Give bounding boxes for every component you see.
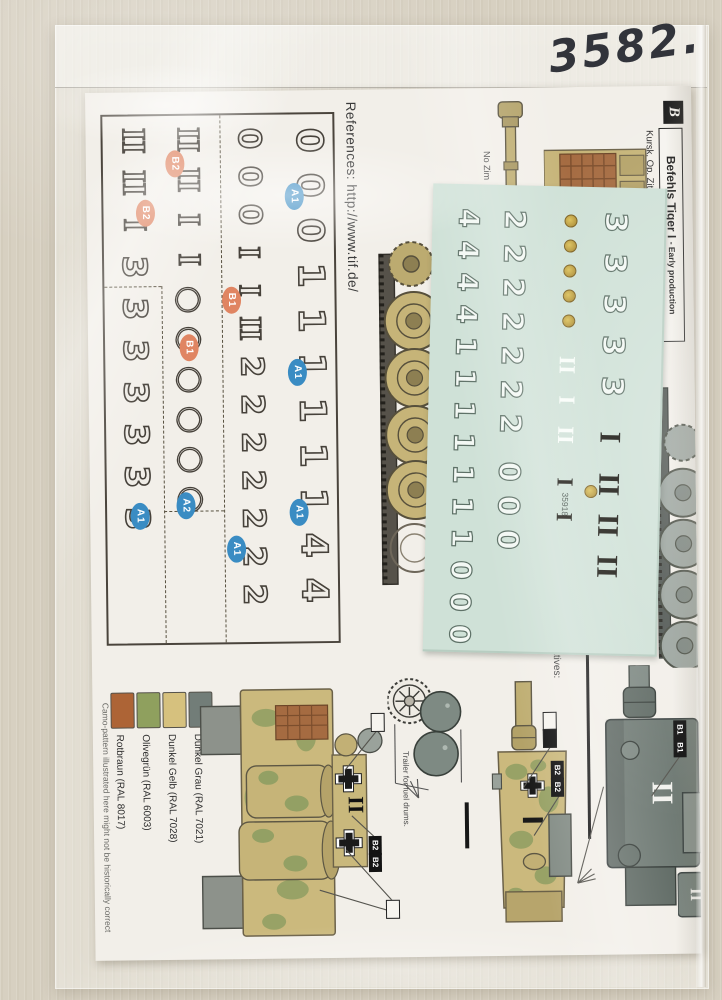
marker-box-B1: B1 bbox=[673, 720, 686, 739]
svg-text:II: II bbox=[344, 796, 369, 813]
guide-glyph: 0 bbox=[233, 166, 264, 188]
decal-glyph: I bbox=[594, 431, 624, 443]
paint-label: Olivegrün (RAL 6003) bbox=[140, 734, 154, 949]
decal-glyph: 0 bbox=[493, 495, 522, 516]
paint-label: Dunkel Gelb (RAL 7028) bbox=[166, 734, 180, 949]
decal-glyph: 3 bbox=[597, 294, 627, 316]
position-label-A1: A1 bbox=[289, 499, 308, 526]
decal-glyph: 2 bbox=[497, 345, 526, 366]
decal-column: 2222222000 bbox=[487, 205, 535, 555]
decal-glyph: 2 bbox=[497, 311, 526, 332]
callout-box bbox=[543, 729, 557, 748]
decal-glyph: 1 bbox=[447, 528, 475, 548]
decal-glyph: 1 bbox=[449, 464, 477, 484]
guide-glyph: II bbox=[172, 127, 204, 152]
decal-column: 33333IIIIIII bbox=[586, 207, 634, 582]
position-label-A1: A1 bbox=[227, 536, 246, 563]
decal-glyph: 2 bbox=[498, 277, 527, 298]
guide-glyph: 0 bbox=[292, 218, 328, 244]
guide-glyph: ○ bbox=[174, 286, 206, 314]
decal-glyph: 4 bbox=[454, 240, 482, 260]
guide-glyph: 3 bbox=[117, 255, 150, 278]
guide-glyph: 0 bbox=[234, 204, 265, 226]
decal-glyph: II bbox=[592, 513, 623, 537]
guide-glyph: 4 bbox=[296, 577, 332, 603]
position-label-B2: B2 bbox=[136, 200, 155, 227]
guide-glyph: II bbox=[235, 316, 266, 341]
guide-glyph: 1 bbox=[293, 308, 329, 334]
guide-glyph: I bbox=[173, 213, 205, 226]
decal-glyph: I bbox=[553, 477, 576, 486]
decal-glyph: 1 bbox=[451, 336, 479, 356]
decal-glyph: II bbox=[593, 472, 624, 496]
guide-glyph: 2 bbox=[237, 470, 268, 492]
position-label-A1: A1 bbox=[285, 183, 304, 210]
decal-glyph: 4 bbox=[452, 304, 480, 324]
paint-swatch bbox=[136, 692, 160, 728]
decal-glyph: I bbox=[552, 512, 575, 521]
marker-box-B2: B2 bbox=[369, 853, 382, 872]
decal-emblem bbox=[564, 214, 577, 227]
guide-glyph: 1 bbox=[294, 442, 330, 468]
decal-column: IIIIIII bbox=[544, 214, 591, 529]
decal-glyph: 2 bbox=[500, 209, 529, 230]
guide-glyph: ○ bbox=[175, 366, 207, 394]
decal-glyph: I bbox=[555, 395, 578, 404]
decal-glyph: 1 bbox=[450, 400, 478, 420]
guide-glyph: II bbox=[116, 128, 149, 154]
decal-glyph: 2 bbox=[495, 413, 524, 434]
guide-glyph: I bbox=[234, 246, 265, 258]
decal-emblem bbox=[563, 264, 576, 277]
guide-glyph: 1 bbox=[294, 398, 330, 424]
decal-glyph: 3 bbox=[596, 335, 626, 357]
position-label-A1: A1 bbox=[288, 359, 307, 386]
camo-disclaimer-note: Camo-pattern illustrated here might not … bbox=[100, 703, 113, 953]
guide-glyph: 3 bbox=[118, 297, 151, 320]
guide-glyph: I bbox=[174, 253, 206, 266]
tank-rear-view-illustration: II bbox=[195, 676, 418, 949]
decal-glyph: II bbox=[554, 426, 577, 444]
position-label-B1: B1 bbox=[222, 287, 241, 314]
waterslide-decal-sheet: 35918 444411111110002222222000IIIIIII333… bbox=[423, 183, 668, 656]
guide-glyph: 3 bbox=[120, 423, 153, 446]
fuel-drum-trailer-illustration bbox=[387, 677, 479, 803]
decal-glyph: 0 bbox=[494, 461, 523, 482]
guide-glyph: ○ bbox=[176, 446, 208, 474]
decal-emblem bbox=[562, 289, 575, 302]
black-bar-marking bbox=[465, 802, 470, 848]
decal-glyph: II bbox=[556, 356, 579, 374]
paint-label: Rotbraun (RAL 8017) bbox=[114, 735, 128, 950]
guide-glyph: 3 bbox=[119, 381, 152, 404]
guide-column: IIIIII○○○○○○ bbox=[164, 123, 217, 516]
decal-glyph: 1 bbox=[448, 496, 476, 516]
position-label-B1: B1 bbox=[179, 334, 198, 361]
paint-swatch bbox=[110, 692, 134, 728]
guide-glyph: ○ bbox=[176, 406, 208, 434]
decal-glyph: 3 bbox=[596, 376, 626, 398]
guide-glyph: 2 bbox=[236, 356, 267, 378]
guide-glyph: 2 bbox=[238, 507, 269, 529]
decal-glyph: 1 bbox=[451, 368, 479, 388]
decal-emblem bbox=[563, 239, 576, 252]
guide-glyph: 0 bbox=[290, 128, 326, 154]
decal-glyph: 4 bbox=[454, 208, 482, 228]
callout-box bbox=[371, 713, 385, 732]
position-label-B2: B2 bbox=[165, 150, 184, 177]
decal-glyph: 2 bbox=[496, 379, 525, 400]
decal-glyph: 3 bbox=[599, 212, 629, 234]
guide-glyph: 0 bbox=[233, 128, 264, 150]
guide-glyph: 2 bbox=[237, 432, 268, 454]
decal-emblem bbox=[562, 314, 575, 327]
decal-glyph: 3 bbox=[598, 253, 628, 275]
marker-box-B2: B2 bbox=[551, 778, 564, 797]
position-label-A1: A1 bbox=[131, 503, 150, 530]
decal-glyph: 0 bbox=[446, 560, 474, 580]
section-divider-line bbox=[586, 641, 591, 839]
decal-glyph: II bbox=[591, 554, 622, 578]
guide-glyph: II bbox=[116, 170, 149, 196]
references-url: References: http://www.tif.de/ bbox=[343, 102, 362, 402]
decal-glyph: 0 bbox=[446, 592, 474, 612]
guide-dashed-divider bbox=[161, 286, 166, 643]
decal-glyph: 1 bbox=[449, 432, 477, 452]
decal-glyph: 0 bbox=[493, 529, 522, 550]
decal-placement-guide: 00011111144000IIII2222222IIIIII○○○○○○III… bbox=[100, 112, 340, 646]
callout-box bbox=[386, 900, 400, 919]
decal-glyph: 4 bbox=[453, 272, 481, 292]
guide-glyph: 3 bbox=[119, 339, 152, 362]
decal-glyph: 0 bbox=[445, 624, 473, 644]
guide-glyph: 3 bbox=[120, 465, 153, 488]
decal-column: 44441111111000 bbox=[439, 204, 489, 649]
guide-glyph: 1 bbox=[292, 263, 328, 289]
marker-box-B1: B1 bbox=[673, 738, 686, 757]
tank-front-view-camo-illustration bbox=[485, 679, 580, 930]
guide-glyph: 2 bbox=[239, 583, 270, 605]
paint-swatch bbox=[162, 692, 186, 728]
guide-glyph: 2 bbox=[236, 394, 267, 416]
decal-glyph: 2 bbox=[499, 243, 528, 264]
position-label-A2: A2 bbox=[176, 492, 195, 519]
guide-column: IIIII3333333 bbox=[108, 124, 161, 536]
guide-glyph: 4 bbox=[295, 532, 331, 558]
plastic-sleeve-edge bbox=[696, 25, 706, 987]
